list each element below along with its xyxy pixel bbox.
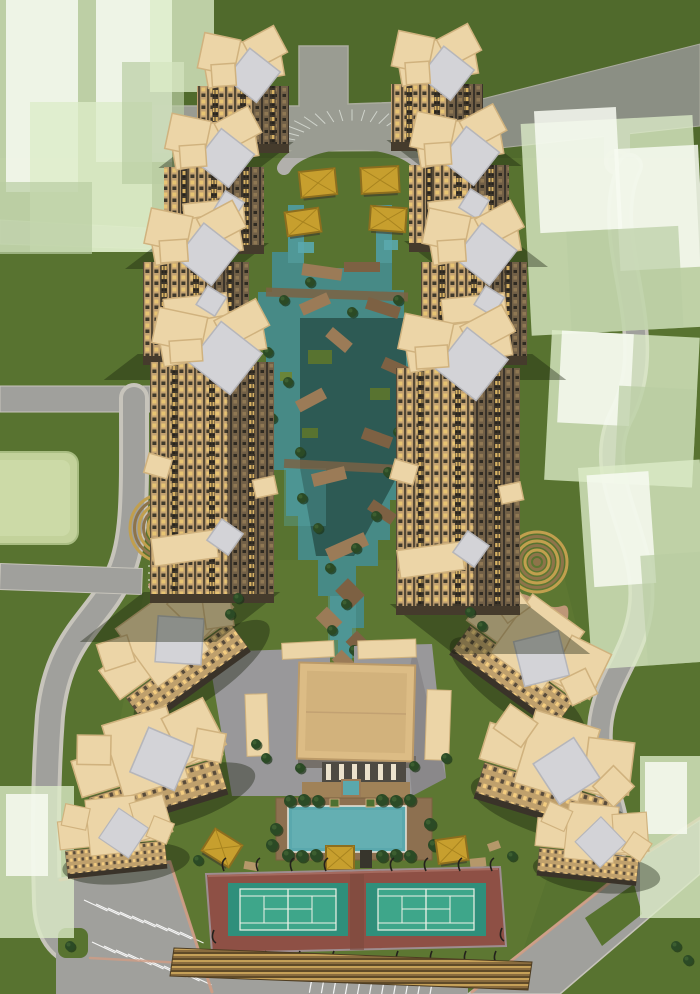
pool-trees-upper (298, 794, 310, 806)
colonnade (352, 764, 357, 780)
pool-trees-lower-highlight (426, 820, 431, 825)
scattered-trees-highlight (685, 957, 689, 961)
courtyard-trees-highlight (315, 525, 319, 529)
pool-trees-lower-highlight (268, 841, 273, 846)
scattered-trees (193, 855, 203, 865)
tower-southwest-recess-glow (172, 362, 177, 602)
tower-east-roof (437, 239, 466, 263)
pool-trees-upper (284, 795, 296, 807)
tower-southeast-roof (415, 345, 449, 369)
clubhouse-trees (409, 761, 419, 771)
courtyard-trees (393, 295, 403, 305)
courtyard-trees-highlight (307, 279, 311, 283)
courtyard-trees-highlight (373, 513, 377, 517)
scattered-trees (671, 941, 681, 951)
clubhouse-wing-ne (358, 639, 417, 659)
tower-southeast-roof (498, 482, 523, 504)
courtyard-trees-highlight (327, 565, 331, 569)
courtyard-trees-highlight (351, 647, 355, 651)
tower-southeast-base (396, 606, 520, 615)
courtyard-trees-highlight (353, 545, 357, 549)
scattered-trees (441, 753, 451, 763)
pad-2 (470, 857, 487, 868)
scattered-trees-highlight (227, 611, 231, 615)
scattered-trees-highlight (67, 943, 71, 947)
pool-trees-upper (404, 794, 416, 806)
tower-southeast-recess-glow (456, 368, 461, 614)
pool-trees-lower (266, 839, 278, 851)
circular-plaza-east-center (533, 558, 541, 566)
colonnade (339, 764, 344, 780)
context-building-southwest-block (6, 794, 48, 876)
pool-trees-lower-highlight (392, 851, 397, 856)
scattered-trees-highlight (673, 943, 677, 947)
context-building-southwest (0, 786, 74, 938)
courtyard-trees-highlight (395, 297, 399, 301)
pool-trees-upper (376, 794, 388, 806)
midrise-west-3-roof (61, 804, 90, 831)
courtyard-trees (305, 277, 315, 287)
scattered-trees (225, 609, 235, 619)
scattered-trees (65, 941, 75, 951)
west-green-field-inner (0, 460, 70, 536)
courtyard-trees-highlight (329, 627, 333, 631)
colonnade (391, 764, 396, 780)
clubhouse-wing-e (425, 690, 451, 761)
pool-trees-upper-highlight (378, 796, 383, 801)
scattered-trees (251, 739, 261, 749)
tower-north-1-roof (211, 63, 236, 87)
pool-trees-lower (404, 850, 416, 862)
scattered-trees-highlight (195, 857, 199, 861)
tower-northeast-roof (424, 142, 451, 166)
tower-north-1-recess-glow (270, 86, 275, 152)
courtyard-trees-highlight (385, 469, 389, 473)
pool-trees-lower-highlight (378, 852, 383, 857)
stepping-paths (344, 262, 380, 272)
entry-pavilion-2 (360, 166, 399, 197)
site-aerial-rendering (0, 0, 700, 994)
scattered-trees-highlight (467, 609, 471, 613)
courtyard-trees-highlight (349, 309, 353, 313)
pool-trees-upper-highlight (314, 797, 319, 802)
islet-3 (302, 428, 318, 438)
islet-2 (370, 388, 390, 400)
pool-planter-1 (330, 799, 339, 807)
courtyard-trees (327, 625, 337, 635)
pool-planter-2 (366, 799, 375, 807)
context-building-southeast-block (645, 762, 687, 834)
tower-west-roof (159, 239, 188, 263)
pool-trees-lower-highlight (312, 851, 317, 856)
courtyard-trees (295, 447, 305, 457)
courtyard-trees-highlight (343, 601, 347, 605)
courtyard-trees (351, 543, 361, 553)
pool-trees-lower (376, 850, 388, 862)
courtyard-trees (325, 563, 335, 573)
tower-north-2-roof (405, 61, 430, 85)
pool-trees-upper-highlight (300, 796, 305, 801)
courtyard-trees (371, 511, 381, 521)
courtyard-trees (279, 295, 289, 305)
cascade-east (384, 240, 398, 250)
midrise-west-2-roof (192, 728, 226, 762)
scattered-trees (477, 621, 487, 631)
courtyard-trees-highlight (281, 297, 285, 301)
courtyard-trees (341, 599, 351, 609)
courtyard-trees (297, 493, 307, 503)
entry-pavilion-3 (284, 208, 321, 239)
courtyard-trees (347, 307, 357, 317)
context-building-northeast-block (566, 226, 683, 334)
context-building-east-2-block (640, 551, 700, 665)
pool-trees-lower (270, 823, 282, 835)
context-building-east-2 (578, 459, 700, 669)
scattered-trees-highlight (235, 595, 239, 599)
gold-pyramid-east (435, 836, 468, 867)
pool-trees-lower-highlight (272, 825, 277, 830)
scattered-trees (507, 851, 517, 861)
pool-trees-lower-highlight (284, 851, 289, 856)
pool-trees-lower-highlight (406, 852, 411, 857)
scattered-trees (683, 955, 693, 965)
pool-trees-upper (390, 795, 402, 807)
pool-trees-lower (296, 850, 308, 862)
tower-northwest-roof (179, 144, 206, 168)
scattered-trees (233, 593, 243, 603)
road-west-branch-mid (0, 564, 142, 595)
gold-pyramid-center (326, 846, 354, 873)
context-building-northwest-block (0, 182, 92, 254)
scattered-trees-highlight (509, 853, 513, 857)
colonnade (365, 764, 370, 780)
kiosk (360, 850, 372, 868)
context-building-southeast (640, 756, 700, 918)
courtyard-trees-highlight (299, 495, 303, 499)
scattered-trees-highlight (253, 741, 257, 745)
tower-southwest-roof (252, 476, 277, 498)
courtyard-trees-highlight (285, 379, 289, 383)
cascade-west (298, 242, 314, 253)
scattered-trees-highlight (479, 623, 483, 627)
scattered-trees-highlight (443, 755, 447, 759)
clubhouse-trees-highlight (411, 763, 415, 767)
courtyard-trees (283, 377, 293, 387)
entry-pavilion-4 (369, 206, 407, 235)
pool-trees-upper (312, 795, 324, 807)
entry-pavilion-1 (299, 168, 338, 201)
courtyard-trees-highlight (297, 449, 301, 453)
courtyard-trees (313, 523, 323, 533)
pool-trees-lower (424, 818, 436, 830)
colonnade (326, 764, 331, 780)
scattered-trees-highlight (263, 755, 267, 759)
tower-southwest-roof (169, 339, 203, 363)
spa-pool (342, 780, 360, 796)
colonnade (378, 764, 383, 780)
pool-trees-upper-highlight (286, 797, 291, 802)
pool-sparkle (292, 810, 402, 848)
pool-trees-lower (310, 849, 322, 861)
pool-trees-lower-highlight (298, 852, 303, 857)
clubhouse-trees (295, 763, 305, 773)
tower-southwest-recess-glow (210, 362, 215, 602)
clubhouse-wing-nw (282, 641, 335, 660)
court-divider (350, 874, 364, 950)
pool-trees-lower-highlight (430, 841, 435, 846)
midrise-west-2-roof (77, 735, 111, 765)
rendering-stage (0, 0, 700, 994)
pool-trees-upper-highlight (392, 797, 397, 802)
context-building-northeast (520, 103, 700, 336)
scattered-trees (465, 607, 475, 617)
islet-1 (308, 350, 332, 364)
scattered-trees (261, 753, 271, 763)
tower-southeast-recess-glow (418, 368, 423, 614)
context-building-northeast-block (534, 107, 622, 233)
pool-trees-upper-highlight (406, 796, 411, 801)
tower-southwest-base (150, 594, 274, 603)
clubhouse-trees-highlight (297, 765, 301, 769)
